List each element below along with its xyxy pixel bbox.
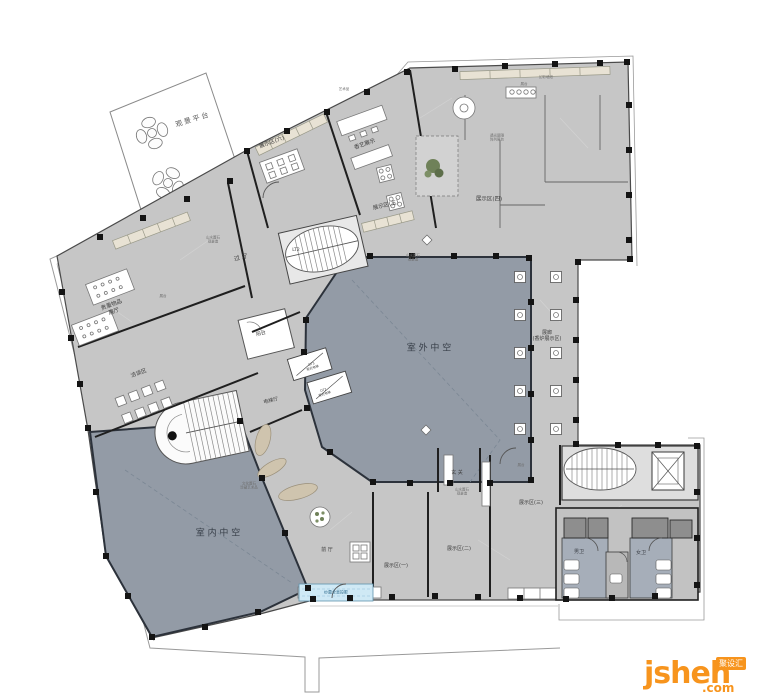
restrooms-region (556, 508, 698, 600)
logo-tld-text: .com (702, 681, 734, 695)
floor-plan-drawing (0, 0, 760, 699)
outdoor-atrium-region (305, 257, 531, 482)
floor-plan-page: 观景平台 展示区(六) 香艺展示 展示区(五) 展示区(四) 展廊 (香炉展示区… (0, 0, 760, 699)
jsheh-watermark-logo[interactable]: jsheh .com 聚设汇 (642, 654, 760, 698)
logo-badge-text: 聚设汇 (716, 657, 746, 670)
core-stair-elevator (562, 446, 698, 500)
elevator-shaft (652, 452, 684, 490)
